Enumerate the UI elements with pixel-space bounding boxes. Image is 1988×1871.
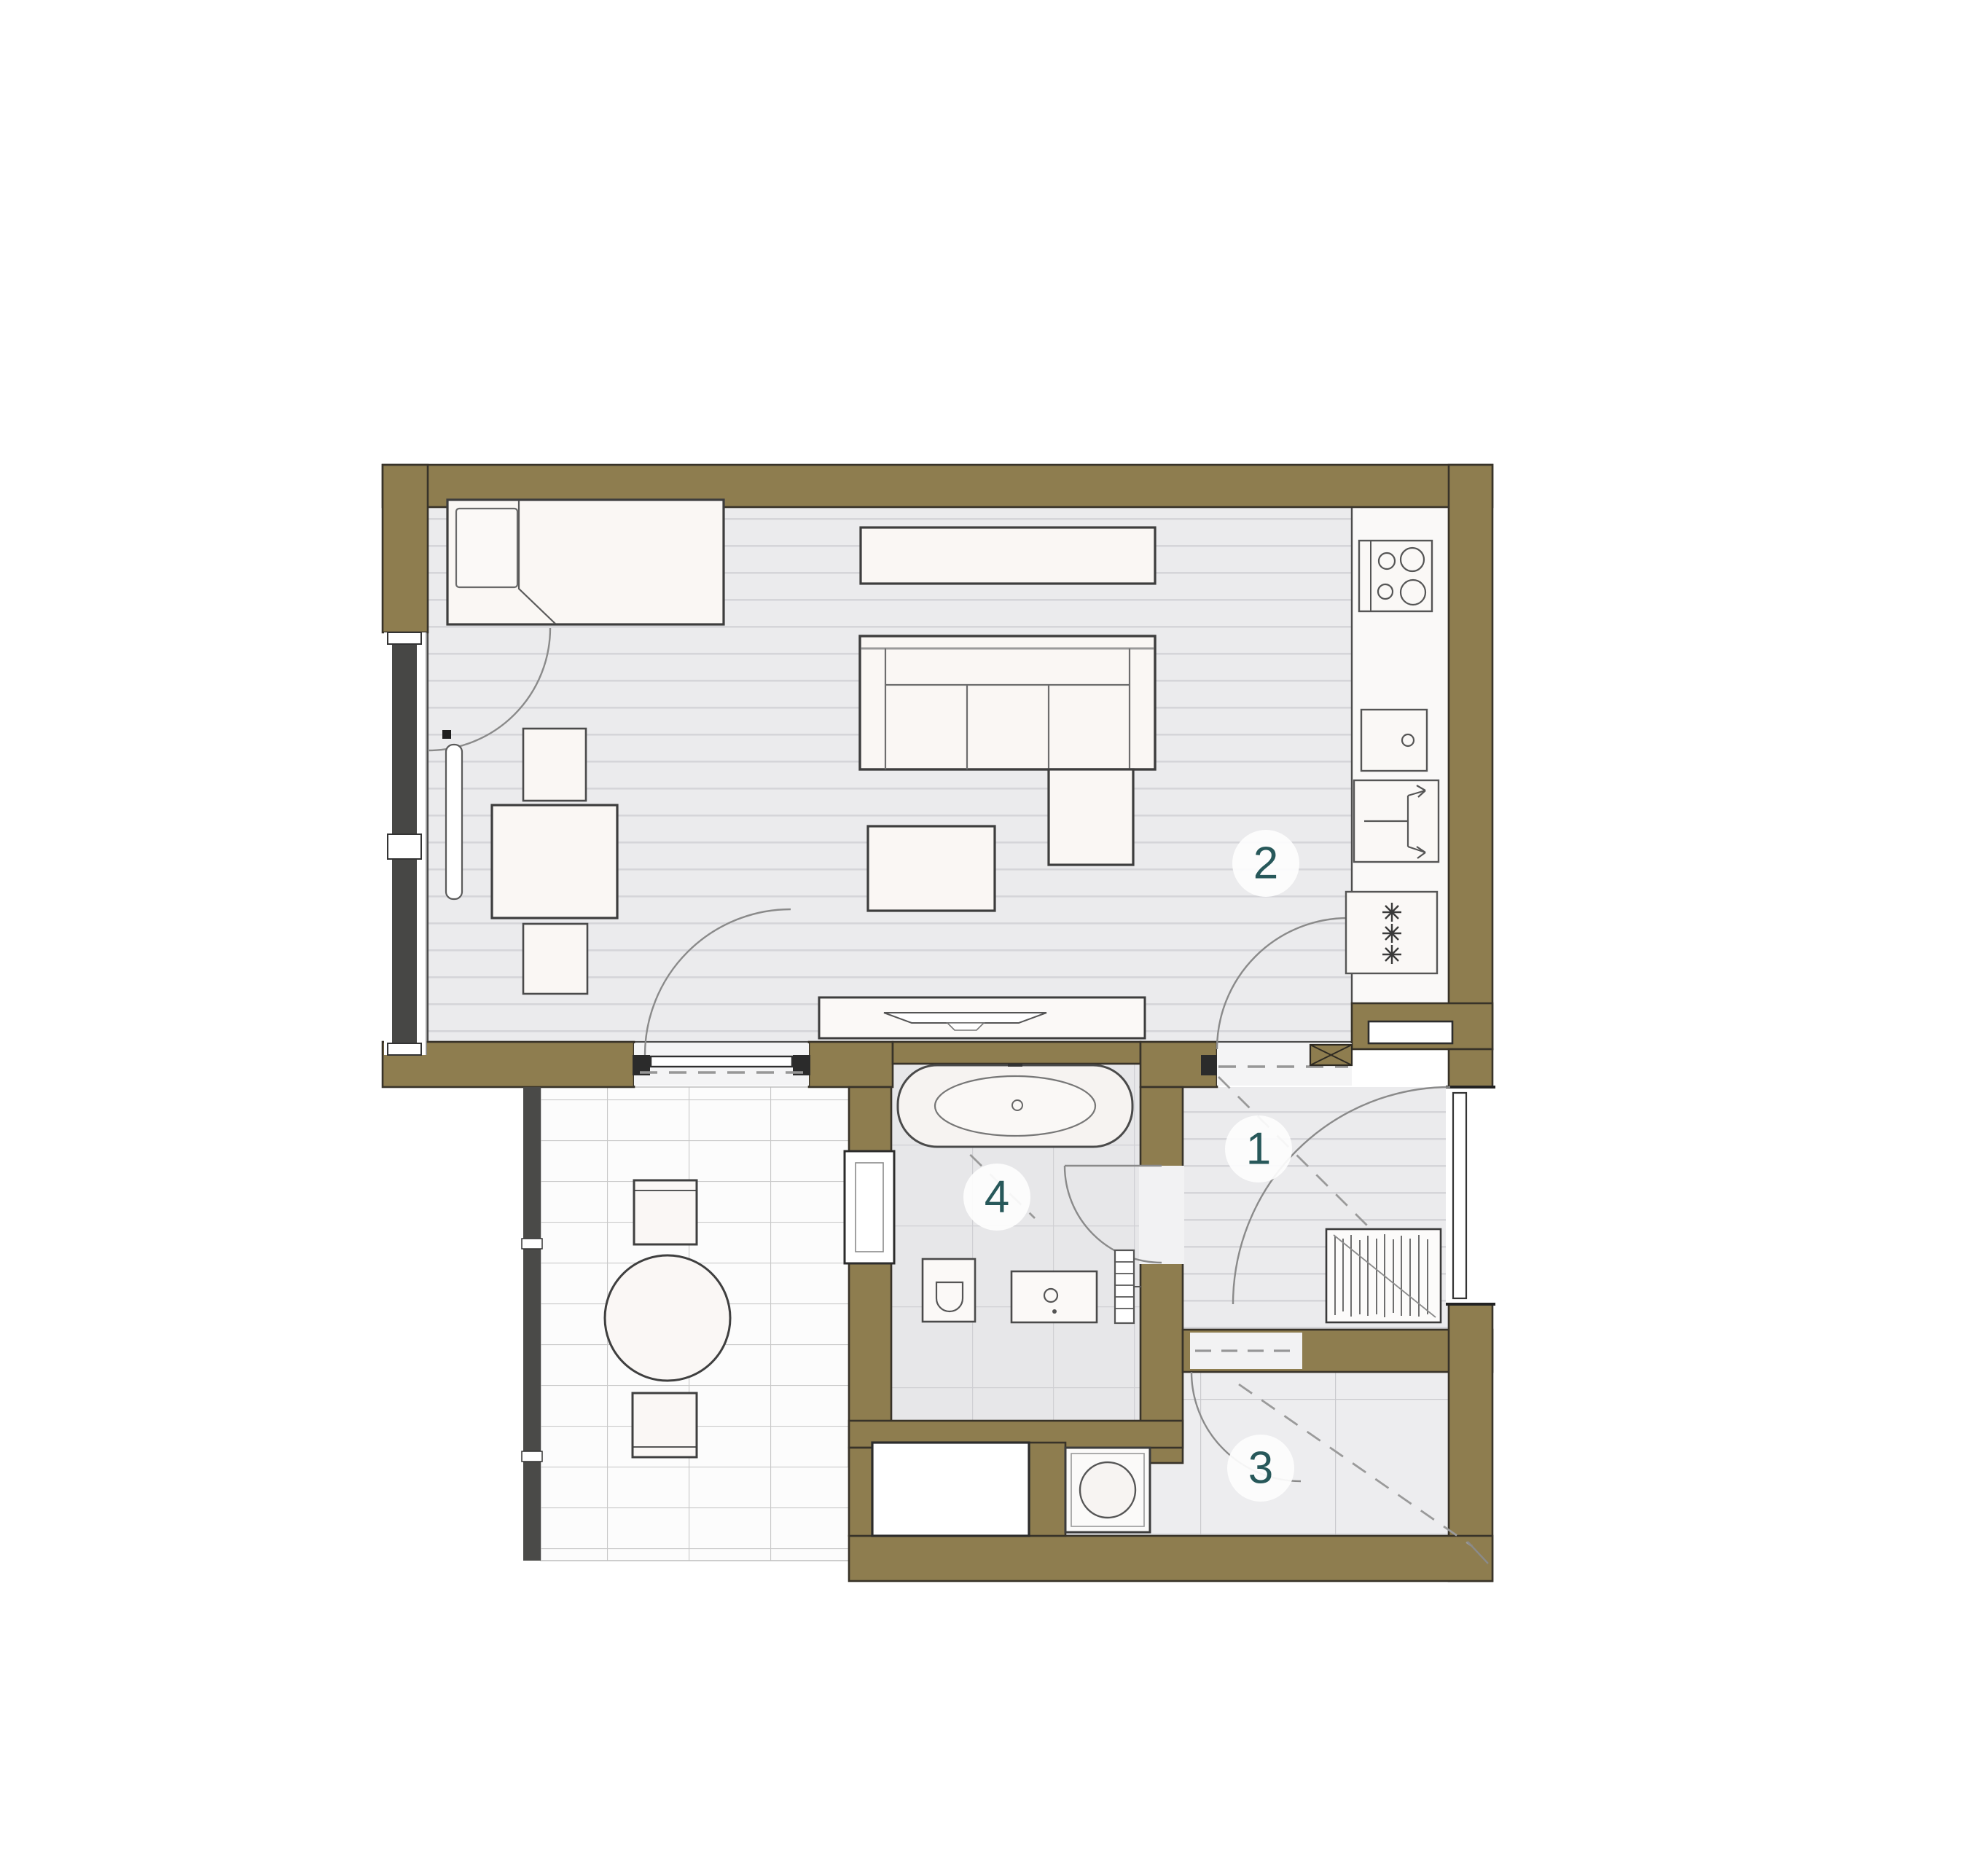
room-label-3: 3	[1248, 1443, 1273, 1494]
wall-bottom	[849, 1536, 1492, 1581]
coffee-table	[868, 826, 995, 911]
wall-bathroom-right	[1140, 1087, 1183, 1463]
room-label-1: 1	[1246, 1124, 1271, 1174]
sideboard	[861, 527, 1155, 584]
railing-post-break-1	[522, 1239, 542, 1249]
floor-plan-page: 1 2 3 4	[0, 0, 1988, 1871]
balcony-chair-bottom	[633, 1393, 697, 1457]
dishwasher-icon	[1354, 780, 1439, 862]
bathtub	[898, 1065, 1132, 1147]
sink-icon	[1361, 710, 1427, 771]
freezer-snowflakes	[1382, 903, 1401, 964]
wall-junction-x	[1310, 1045, 1352, 1065]
sofa-chaise	[1049, 769, 1133, 865]
radiator	[442, 730, 462, 899]
balcony-chair-top	[634, 1180, 697, 1244]
dining-chair-bottom	[523, 924, 587, 994]
room-label-4: 4	[985, 1172, 1009, 1223]
room-label-2: 2	[1253, 839, 1278, 889]
wall-bathroom-top	[893, 1042, 1140, 1064]
wall-shaft-left	[849, 1448, 872, 1536]
hall-door-jamb-left	[1201, 1055, 1217, 1075]
wall-bathroom-left	[849, 1087, 891, 1466]
floor-plan-svg: 1 2 3 4	[0, 0, 1988, 1871]
balcony-railing	[523, 1087, 541, 1561]
wall-right-upper	[1449, 465, 1492, 1049]
dining-chair-top	[523, 729, 586, 801]
washing-machine-icon	[1065, 1448, 1150, 1532]
room-badge-1: 1	[1225, 1115, 1292, 1182]
tv-sideboard	[819, 997, 1145, 1038]
hob-icon	[1359, 541, 1432, 611]
wall-left-upper	[383, 465, 428, 632]
wall-niche	[1369, 1021, 1452, 1043]
entry-door-leaf	[1453, 1093, 1466, 1298]
service-shaft	[872, 1443, 1029, 1536]
washing-machine-drum	[1080, 1462, 1135, 1518]
room-badge-2: 2	[1232, 830, 1299, 897]
bed	[447, 500, 724, 624]
bathroom-door-opening	[1139, 1166, 1184, 1264]
room-badge-4: 4	[963, 1164, 1030, 1231]
balcony-round-table	[605, 1255, 730, 1381]
tv-stand	[947, 1023, 984, 1030]
room-badge-3: 3	[1227, 1435, 1294, 1502]
balcony-door-leaf	[651, 1056, 792, 1067]
toilet-icon	[923, 1259, 975, 1322]
railing-post-break-2	[522, 1451, 542, 1462]
wall-shaft-pier	[1029, 1443, 1065, 1536]
refrigerator-icon	[1346, 892, 1437, 973]
bathroom-window	[845, 1151, 894, 1263]
pillow	[456, 509, 517, 587]
window-left-frame-top	[388, 632, 421, 644]
washbasin-vanity	[1011, 1271, 1097, 1322]
window-left-mullion	[388, 834, 421, 859]
tv-icon	[884, 1013, 1046, 1023]
coat-rack	[1326, 1229, 1441, 1322]
radiator-valve	[442, 730, 451, 739]
basin-tap-dot	[1052, 1309, 1057, 1314]
window-left-frame-bottom	[388, 1043, 421, 1055]
dining-table	[492, 805, 617, 918]
wall-balcony-bath-pier	[809, 1042, 893, 1087]
